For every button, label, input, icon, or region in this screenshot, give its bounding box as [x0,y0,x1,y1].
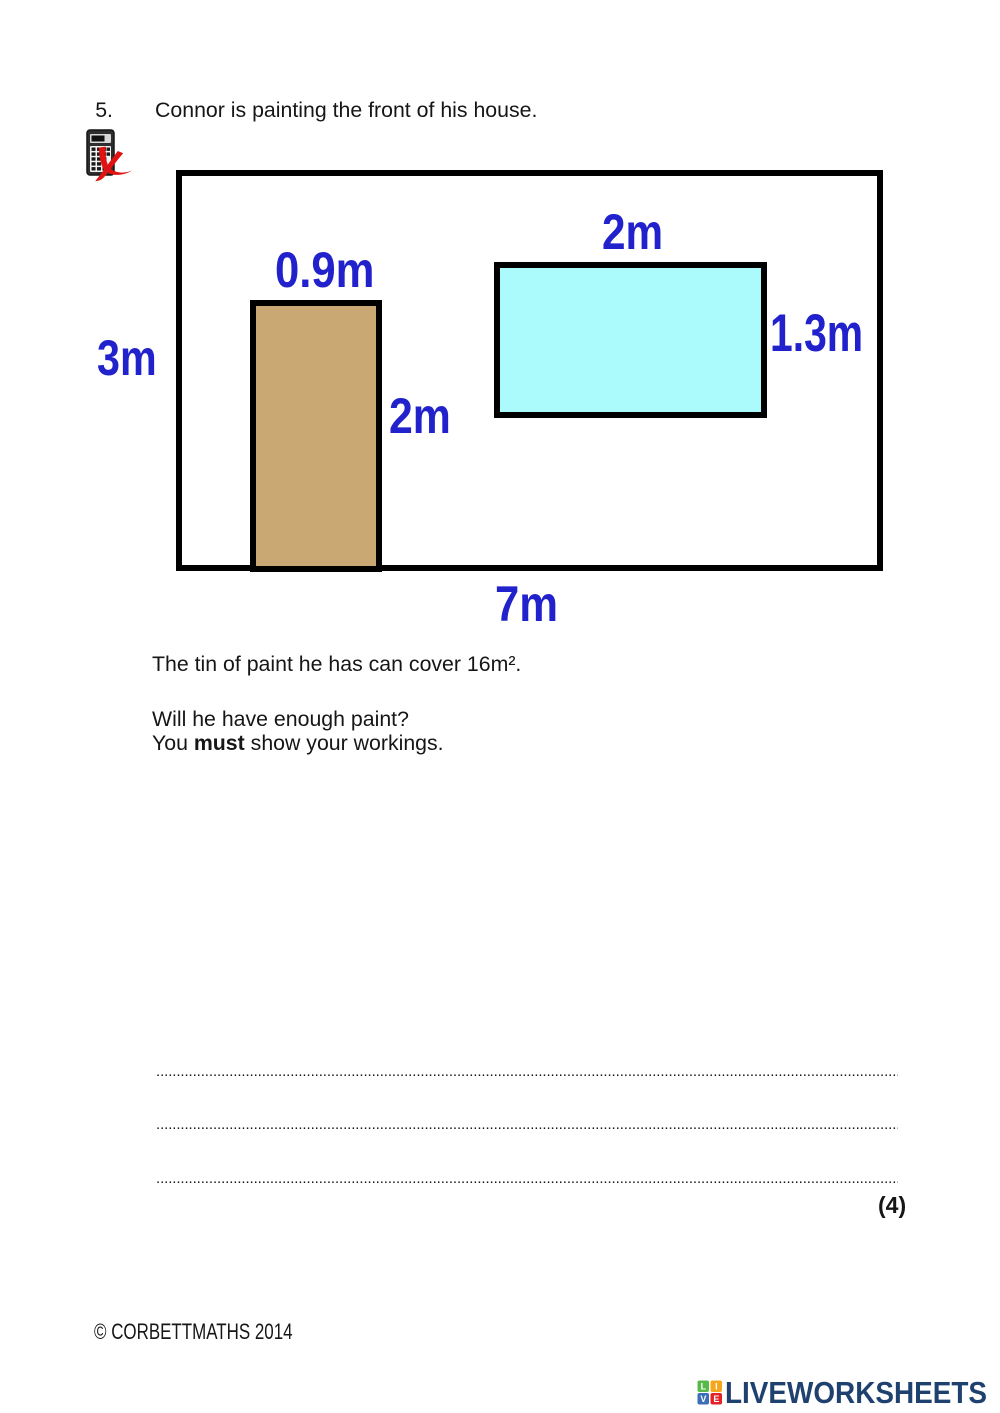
svg-text:I: I [715,1382,718,1392]
svg-text:V: V [700,1394,706,1404]
svg-text:E: E [713,1394,719,1404]
svg-text:L: L [701,1382,707,1392]
